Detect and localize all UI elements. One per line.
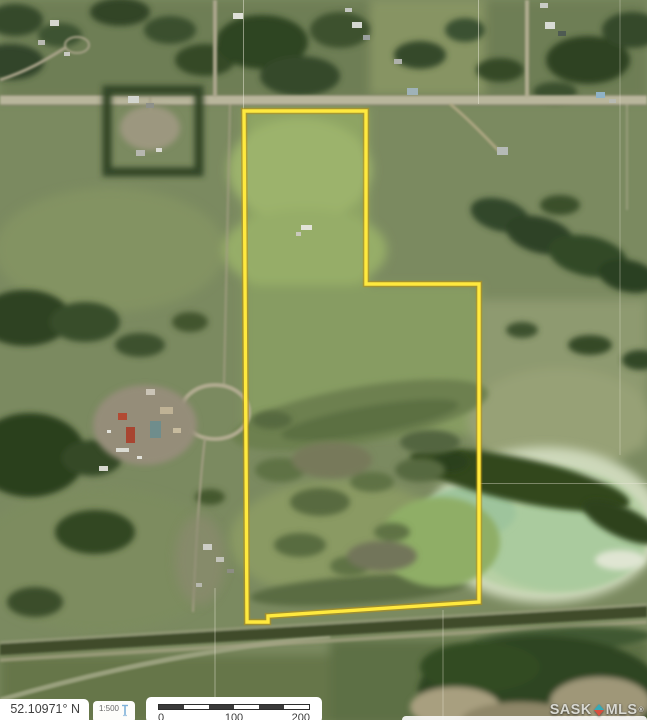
sask-mls-watermark: SASK MLS ®: [550, 702, 644, 718]
measure-tool-icon: [121, 704, 129, 717]
latitude-value: 52.10971° N: [10, 702, 80, 716]
watermark-mls: MLS: [606, 702, 638, 718]
scale-ratio-label: 1:500: [99, 704, 119, 713]
watermark-sask: SASK: [550, 702, 592, 718]
highway-road: [0, 96, 647, 104]
scale-tick-0: 0: [158, 712, 164, 720]
mls-pin-icon: [594, 704, 604, 716]
coordinate-readout: 52.10971° N: [0, 699, 89, 720]
map-viewport[interactable]: 52.10971° N 1:500 0 100 200 SASK: [0, 0, 647, 720]
scale-bar-ticks: 0 100 200: [158, 712, 310, 720]
scale-tick-200: 200: [292, 712, 310, 720]
scale-bar: 0 100 200: [146, 697, 322, 720]
scale-tick-100: 100: [225, 712, 243, 720]
registered-mark: ®: [638, 707, 644, 714]
scale-bar-track: [158, 704, 310, 710]
scale-ratio-button[interactable]: 1:500: [93, 701, 135, 720]
satellite-map: [0, 0, 647, 720]
